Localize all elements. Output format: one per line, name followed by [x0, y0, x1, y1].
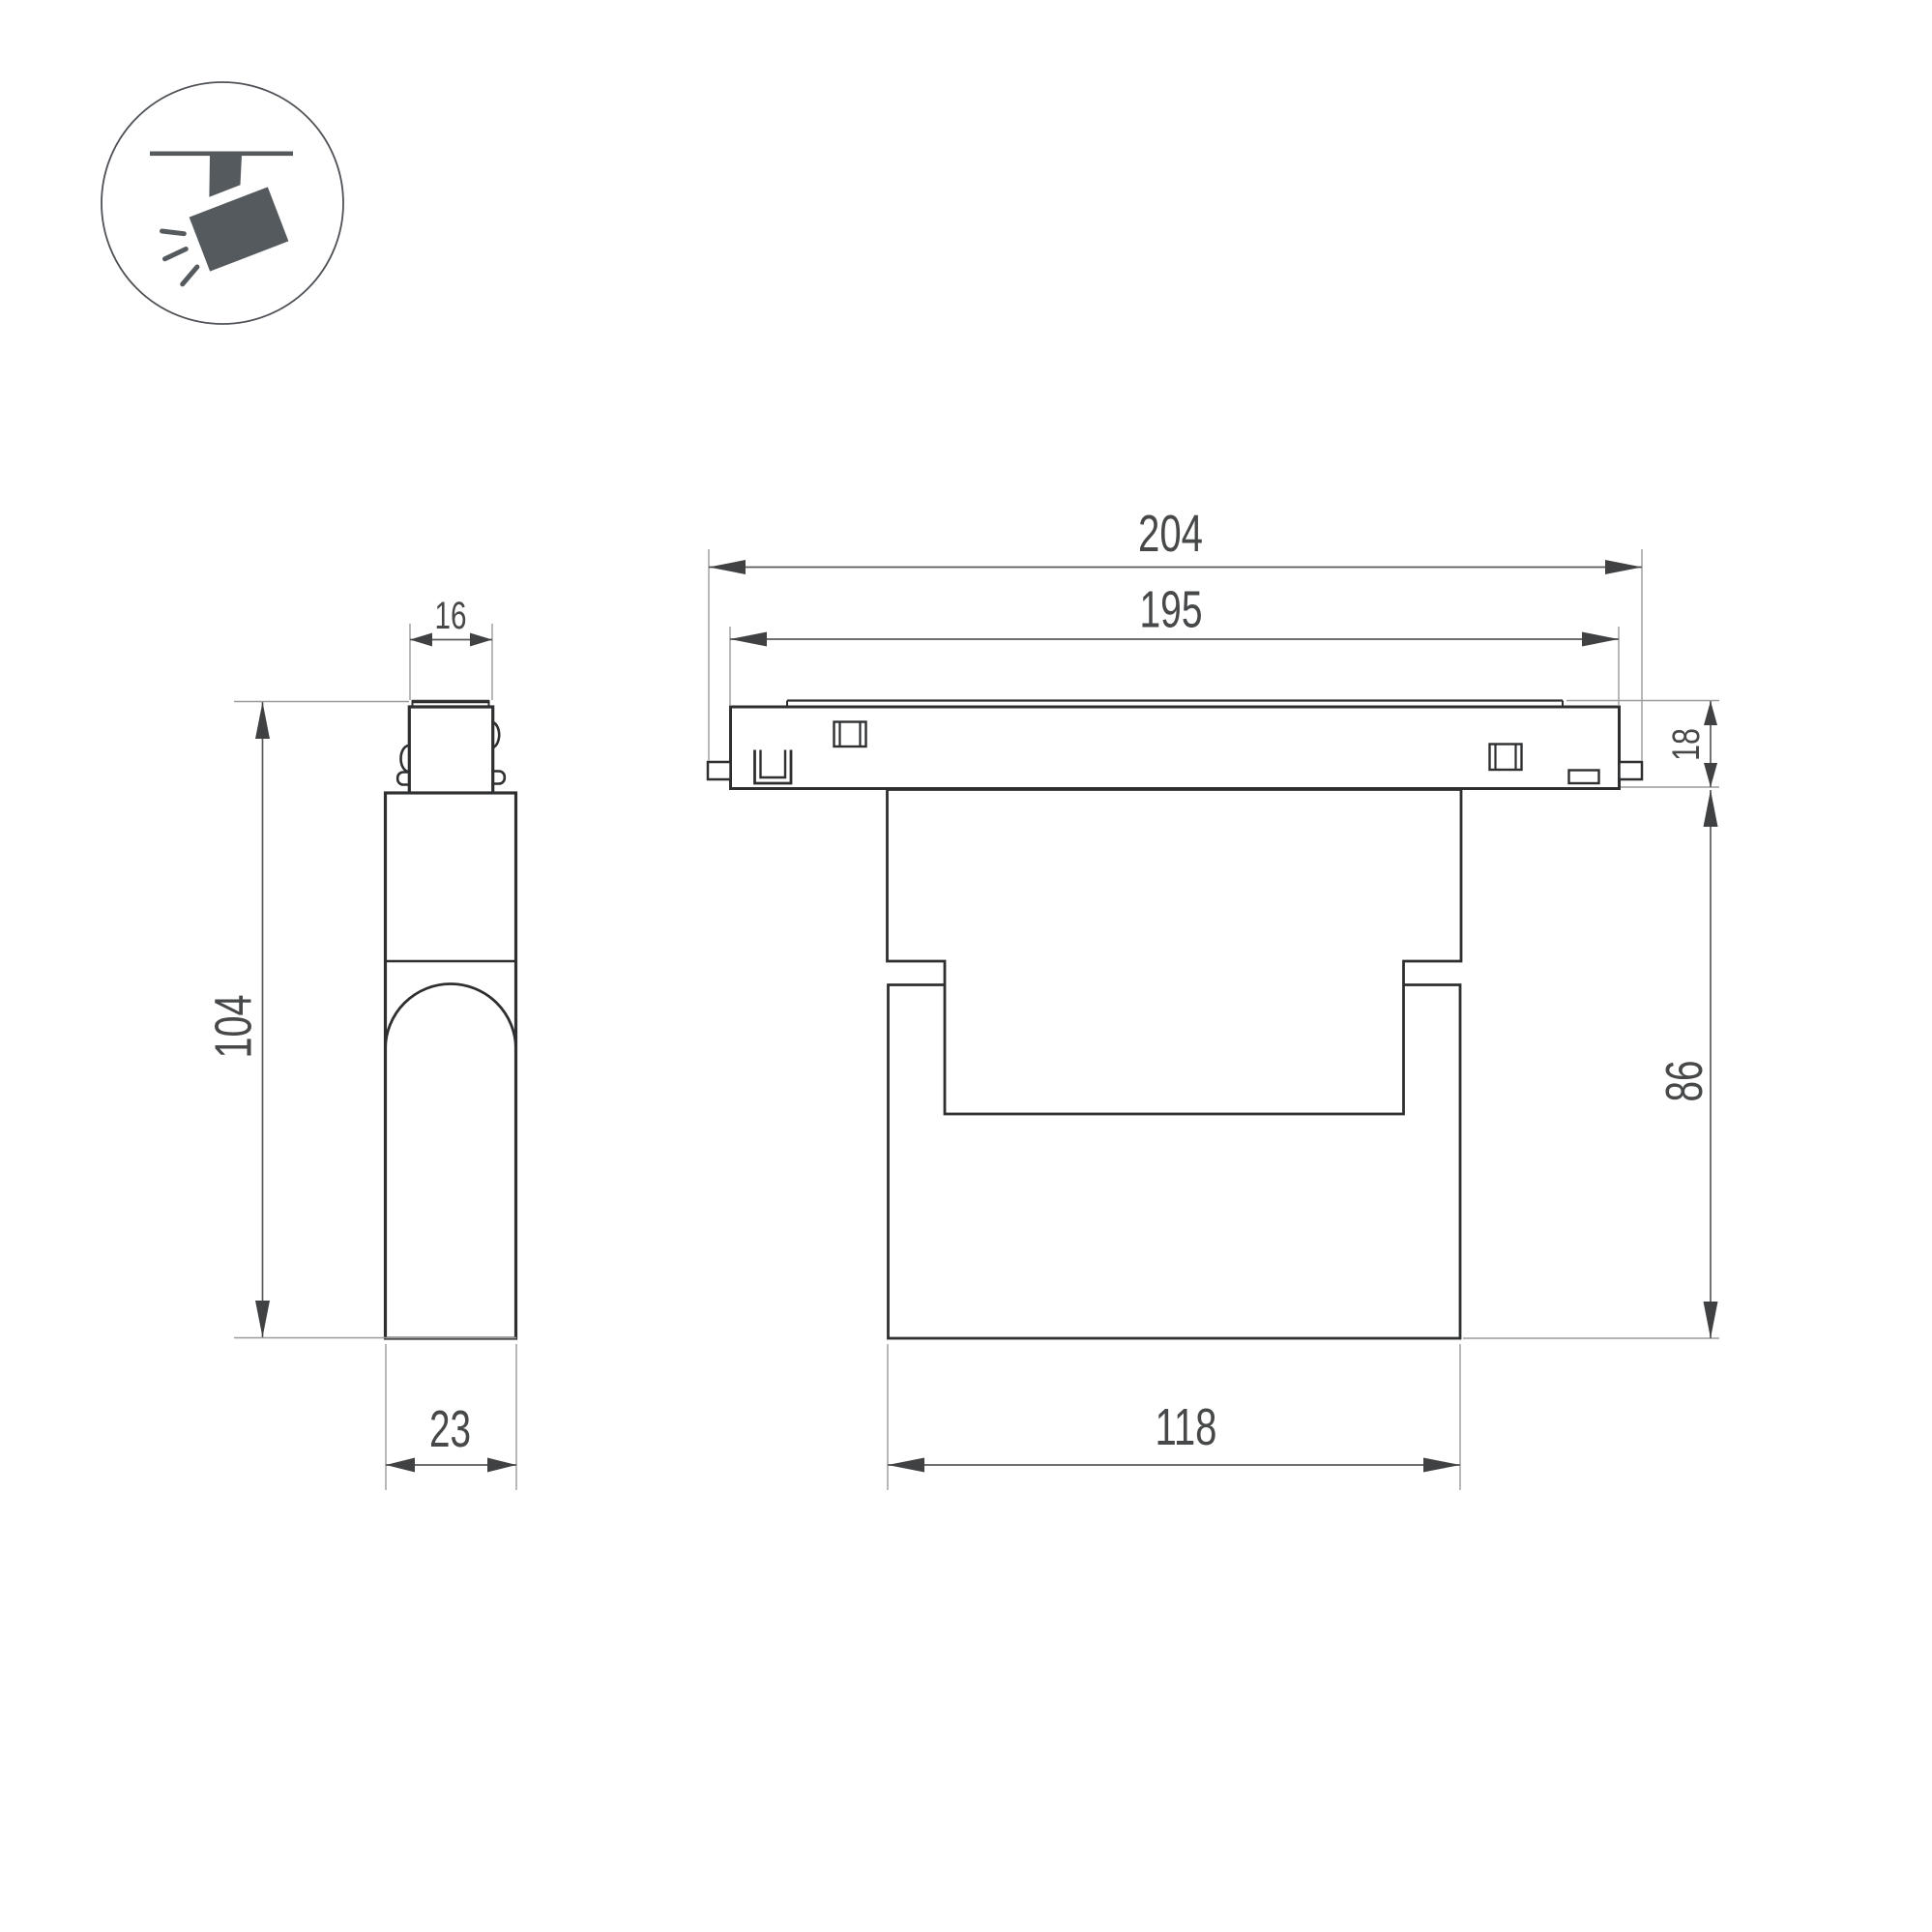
- svg-text:104: 104: [204, 995, 262, 1059]
- svg-text:195: 195: [1140, 581, 1203, 639]
- svg-text:18: 18: [1665, 728, 1708, 761]
- svg-text:23: 23: [429, 1400, 471, 1458]
- svg-text:86: 86: [1655, 1061, 1713, 1102]
- svg-text:16: 16: [435, 595, 467, 637]
- svg-text:118: 118: [1156, 1398, 1217, 1456]
- svg-text:204: 204: [1138, 505, 1203, 563]
